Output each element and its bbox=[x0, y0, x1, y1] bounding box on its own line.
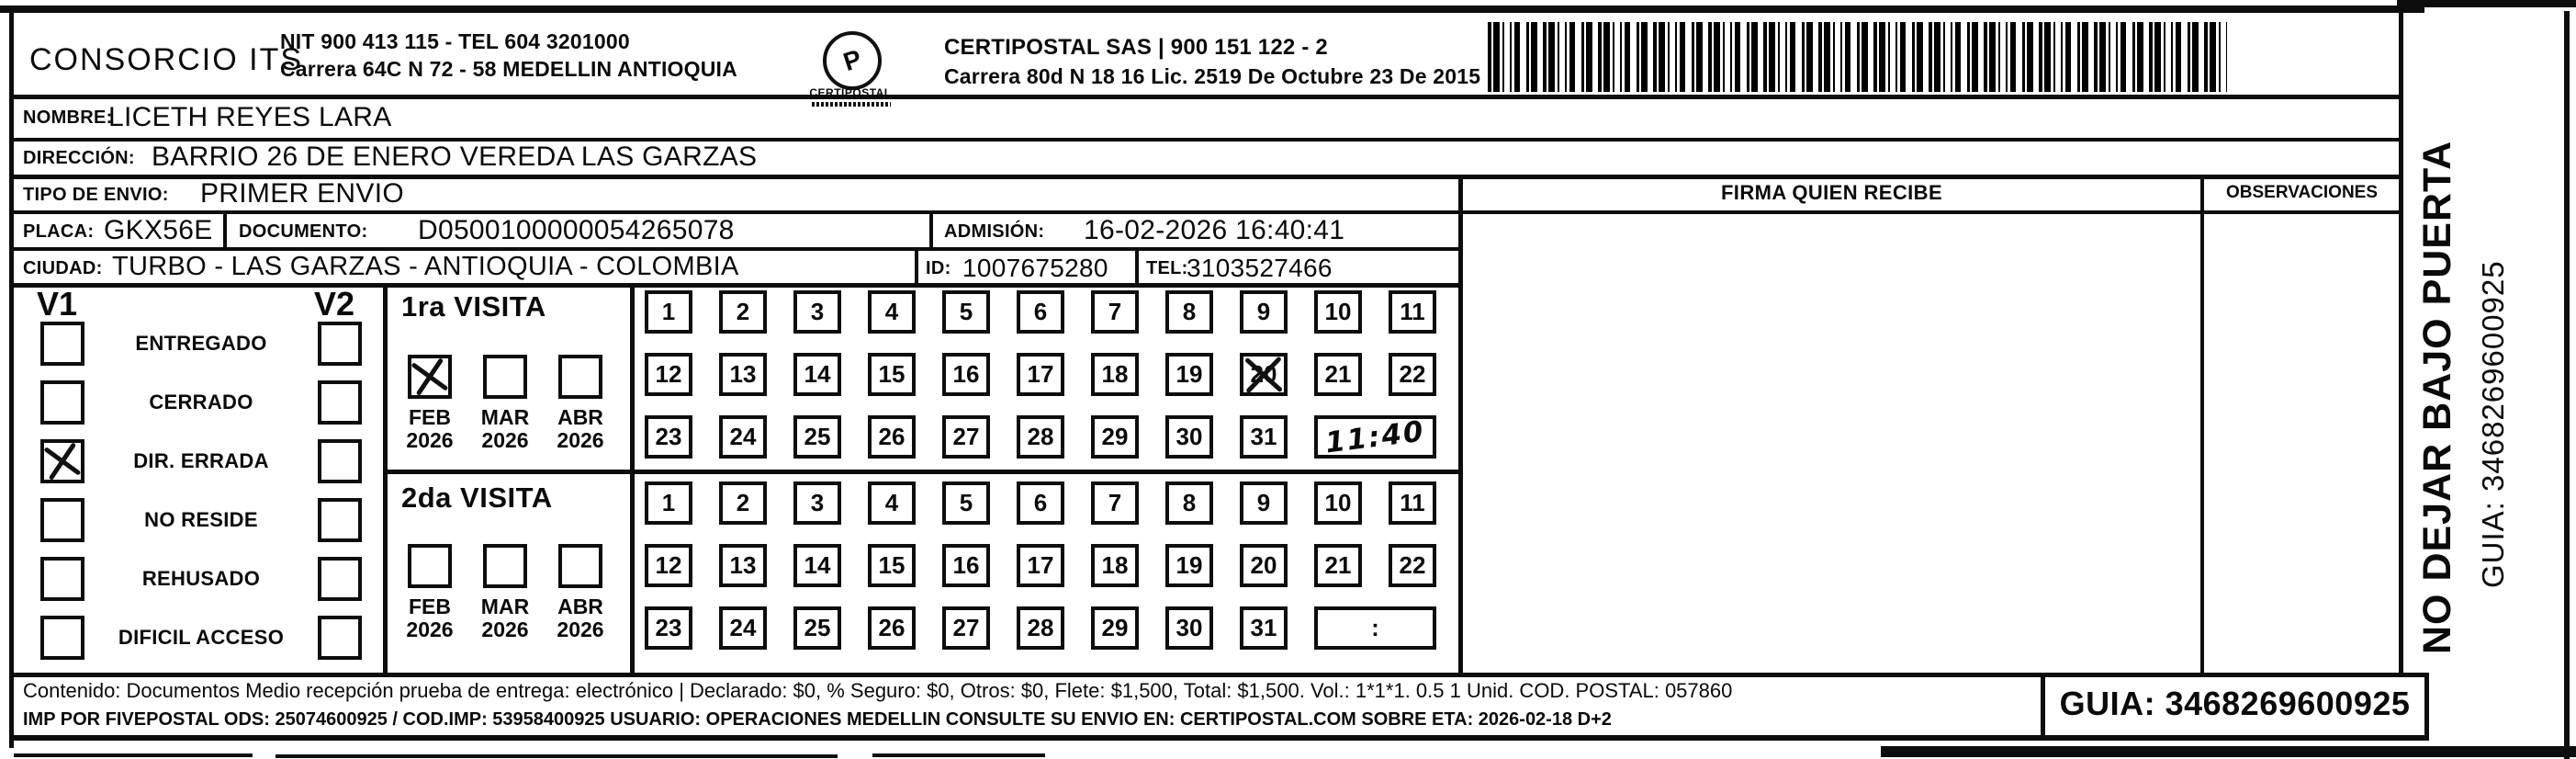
day-box-8: 8 bbox=[1165, 481, 1213, 525]
month-checkbox-abr bbox=[558, 355, 602, 399]
scan-artifact-line bbox=[14, 753, 253, 757]
footer-bottom-line bbox=[9, 735, 2429, 741]
direccion-label: DIRECCIÓN: bbox=[23, 148, 135, 169]
v1-checkbox-rehusado bbox=[40, 557, 84, 601]
month-option-abr: ABR2026 bbox=[548, 544, 613, 641]
company-nit-line: NIT 900 413 115 - TEL 604 3201000 bbox=[280, 29, 630, 54]
month-name: MAR bbox=[473, 595, 537, 618]
day-box-12: 12 bbox=[645, 353, 692, 396]
visit1-title: 1ra VISITA bbox=[401, 290, 546, 323]
day-box-28: 28 bbox=[1017, 415, 1064, 459]
company-name: CONSORCIO ITS bbox=[29, 42, 303, 78]
day-box-21: 21 bbox=[1314, 544, 1362, 587]
ciudad-value: TURBO - LAS GARZAS - ANTIOQUIA - COLOMBI… bbox=[112, 252, 739, 282]
month-option-mar: MAR2026 bbox=[473, 544, 537, 641]
month-checkbox-feb bbox=[408, 544, 452, 588]
day-box-4: 4 bbox=[868, 481, 916, 525]
month-year: 2026 bbox=[548, 618, 613, 641]
month-label: ABR2026 bbox=[548, 406, 613, 452]
day-box-21: 21 bbox=[1314, 353, 1362, 396]
status-label: REHUSADO bbox=[84, 567, 318, 591]
firma-column-left-line bbox=[1458, 175, 1463, 677]
admision-value: 16-02-2026 16:40:41 bbox=[1084, 215, 1344, 246]
v1-checkbox-no-reside bbox=[40, 498, 84, 542]
day-box-10: 10 bbox=[1314, 290, 1362, 334]
nombre-label: NOMBRE: bbox=[23, 108, 113, 129]
certipostal-line2: Carrera 80d N 18 16 Lic. 2519 De Octubre… bbox=[944, 64, 1480, 89]
day-box-6: 6 bbox=[1017, 290, 1064, 334]
month-name: ABR bbox=[548, 595, 613, 618]
visit1-day-grid: 1234567891011121314151617181920212223242… bbox=[645, 290, 1436, 459]
visit1-months: FEB2026MAR2026ABR2026 bbox=[398, 355, 613, 452]
panel-divider bbox=[630, 283, 635, 677]
top-border bbox=[0, 6, 2424, 13]
day-box-25: 25 bbox=[793, 415, 841, 459]
tipo-envio-label: TIPO DE ENVIO: bbox=[23, 185, 169, 206]
day-box-12: 12 bbox=[645, 544, 692, 587]
day-box-11: 11 bbox=[1389, 481, 1436, 525]
panel-divider bbox=[383, 283, 388, 677]
month-option-mar: MAR2026 bbox=[473, 355, 537, 452]
row-line bbox=[9, 95, 2403, 99]
day-box-23: 23 bbox=[645, 415, 692, 459]
scan-artifact-line bbox=[276, 754, 838, 758]
observaciones-column-header: OBSERVACIONES bbox=[2204, 183, 2400, 203]
day-box-23: 23 bbox=[645, 606, 692, 650]
day-box-27: 27 bbox=[942, 415, 990, 459]
day-box-16: 16 bbox=[942, 544, 990, 587]
status-rows: ENTREGADOCERRADODIR. ERRADANO RESIDEREHU… bbox=[40, 322, 362, 674]
id-label: ID: bbox=[926, 258, 951, 279]
month-checkbox-feb bbox=[408, 355, 452, 399]
day-box-6: 6 bbox=[1017, 481, 1064, 525]
day-box-9: 9 bbox=[1240, 481, 1288, 525]
v2-checkbox-entregado bbox=[318, 322, 362, 366]
placa-label: PLACA: bbox=[23, 221, 94, 243]
tel-value: 3103527466 bbox=[1187, 254, 1333, 283]
day-box-26: 26 bbox=[868, 415, 916, 459]
day-box-15: 15 bbox=[868, 544, 916, 587]
guia-box: GUIA: 3468269600925 bbox=[2045, 673, 2424, 735]
status-label: NO RESIDE bbox=[84, 508, 318, 532]
v2-checkbox-dir-errada bbox=[318, 439, 362, 483]
nombre-value: LICETH REYES LARA bbox=[108, 102, 392, 133]
day-box-7: 7 bbox=[1091, 481, 1139, 525]
time-placeholder: : bbox=[1371, 614, 1379, 642]
month-label: MAR2026 bbox=[473, 406, 537, 452]
day-box-17: 17 bbox=[1017, 353, 1064, 396]
barcode bbox=[1488, 22, 2227, 92]
day-box-19: 19 bbox=[1165, 353, 1213, 396]
cell-divider bbox=[929, 210, 933, 251]
day-box-2: 2 bbox=[719, 481, 767, 525]
scan-artifact-line bbox=[1881, 746, 2576, 757]
v2-checkbox-cerrado bbox=[318, 380, 362, 425]
day-box-26: 26 bbox=[868, 606, 916, 650]
month-name: FEB bbox=[398, 406, 462, 429]
row-line bbox=[9, 210, 2403, 214]
day-box-20: 20 bbox=[1240, 544, 1288, 587]
day-box-24: 24 bbox=[719, 415, 767, 459]
visit2-months: FEB2026MAR2026ABR2026 bbox=[398, 544, 613, 641]
status-row-rehusado: REHUSADO bbox=[40, 557, 362, 601]
direccion-value: BARRIO 26 DE ENERO VEREDA LAS GARZAS bbox=[152, 142, 757, 173]
month-label: MAR2026 bbox=[473, 595, 537, 641]
tipo-envio-value: PRIMER ENVIO bbox=[200, 178, 404, 210]
status-row-dir-errada: DIR. ERRADA bbox=[40, 439, 362, 483]
month-year: 2026 bbox=[548, 429, 613, 452]
day-box-13: 13 bbox=[719, 544, 767, 587]
day-box-31: 31 bbox=[1240, 415, 1288, 459]
day-box-10: 10 bbox=[1314, 481, 1362, 525]
v2-checkbox-no-reside bbox=[318, 498, 362, 542]
day-box-3: 3 bbox=[793, 290, 841, 334]
shipping-label-scan: CONSORCIO ITS NIT 900 413 115 - TEL 604 … bbox=[0, 0, 2576, 759]
day-box-14: 14 bbox=[793, 544, 841, 587]
day-box-29: 29 bbox=[1091, 415, 1139, 459]
guia-box-value: GUIA: 3468269600925 bbox=[2060, 685, 2411, 723]
status-label: DIFICIL ACCESO bbox=[84, 626, 318, 650]
scan-right-edge bbox=[2564, 11, 2570, 759]
logo-tagline-bar bbox=[812, 102, 891, 107]
visit2-title: 2da VISITA bbox=[401, 481, 553, 515]
id-value: 1007675280 bbox=[962, 254, 1108, 283]
time-box: : bbox=[1314, 606, 1436, 650]
day-box-16: 16 bbox=[942, 353, 990, 396]
day-box-5: 5 bbox=[942, 290, 990, 334]
day-box-1: 1 bbox=[645, 290, 692, 334]
month-name: ABR bbox=[548, 406, 613, 429]
v1-checkbox-entregado bbox=[40, 322, 84, 366]
admision-label: ADMISIÓN: bbox=[944, 221, 1044, 243]
side-warning-text: NO DEJAR BAJO PUERTA bbox=[2415, 121, 2467, 654]
document-right-border bbox=[2399, 7, 2403, 674]
month-year: 2026 bbox=[398, 429, 462, 452]
row-line bbox=[9, 247, 1462, 251]
cell-divider bbox=[915, 247, 918, 287]
v1-checkbox-dir-errada bbox=[40, 439, 84, 483]
month-option-feb: FEB2026 bbox=[398, 355, 462, 452]
scan-artifact-line bbox=[872, 753, 1045, 757]
day-box-22: 22 bbox=[1389, 544, 1436, 587]
day-box-15: 15 bbox=[868, 353, 916, 396]
side-guia-text: GUIA: 3468269600925 bbox=[2476, 179, 2513, 588]
status-label: CERRADO bbox=[84, 391, 318, 414]
v2-checkbox-rehusado bbox=[318, 557, 362, 601]
month-year: 2026 bbox=[473, 618, 537, 641]
month-name: MAR bbox=[473, 406, 537, 429]
handwritten-time: 11:40 bbox=[1323, 414, 1426, 459]
status-row-cerrado: CERRADO bbox=[40, 380, 362, 425]
day-box-31: 31 bbox=[1240, 606, 1288, 650]
month-label: FEB2026 bbox=[398, 406, 462, 452]
month-label: ABR2026 bbox=[548, 595, 613, 641]
time-box: 11:40 bbox=[1314, 415, 1436, 459]
day-box-20: 20 bbox=[1240, 353, 1288, 396]
company-address-line: Carrera 64C N 72 - 58 MEDELLIN ANTIOQUIA bbox=[280, 57, 737, 82]
day-box-4: 4 bbox=[868, 290, 916, 334]
guia-box-right-line bbox=[2424, 673, 2429, 741]
v1-checkbox-dificil-acceso bbox=[40, 616, 84, 660]
visit2-day-grid: 1234567891011121314151617181920212223242… bbox=[645, 481, 1436, 650]
status-row-no-reside: NO RESIDE bbox=[40, 498, 362, 542]
month-name: FEB bbox=[398, 595, 462, 618]
day-box-14: 14 bbox=[793, 353, 841, 396]
footer-content-line: Contenido: Documentos Medio recepción pr… bbox=[23, 679, 1732, 703]
tel-label: TEL: bbox=[1146, 258, 1188, 279]
month-option-abr: ABR2026 bbox=[548, 355, 613, 452]
day-box-13: 13 bbox=[719, 353, 767, 396]
observaciones-column-left-line bbox=[2200, 175, 2204, 677]
day-box-30: 30 bbox=[1165, 606, 1213, 650]
firma-column-header: FIRMA QUIEN RECIBE bbox=[1463, 181, 2200, 205]
month-checkbox-mar bbox=[483, 355, 527, 399]
day-box-22: 22 bbox=[1389, 353, 1436, 396]
documento-label: DOCUMENTO: bbox=[239, 221, 367, 243]
month-label: FEB2026 bbox=[398, 595, 462, 641]
status-row-entregado: ENTREGADO bbox=[40, 322, 362, 366]
month-option-feb: FEB2026 bbox=[398, 544, 462, 641]
day-box-17: 17 bbox=[1017, 544, 1064, 587]
placa-value: GKX56E bbox=[104, 215, 213, 246]
v1-header: V1 bbox=[37, 285, 77, 323]
day-box-9: 9 bbox=[1240, 290, 1288, 334]
status-label: DIR. ERRADA bbox=[84, 449, 318, 473]
day-box-3: 3 bbox=[793, 481, 841, 525]
day-box-18: 18 bbox=[1091, 544, 1139, 587]
day-box-25: 25 bbox=[793, 606, 841, 650]
month-year: 2026 bbox=[398, 618, 462, 641]
day-box-1: 1 bbox=[645, 481, 692, 525]
left-border bbox=[9, 6, 14, 748]
v1-checkbox-cerrado bbox=[40, 380, 84, 425]
day-box-30: 30 bbox=[1165, 415, 1213, 459]
day-box-28: 28 bbox=[1017, 606, 1064, 650]
cell-divider bbox=[223, 210, 227, 251]
ciudad-label: CIUDAD: bbox=[23, 258, 103, 279]
row-line bbox=[9, 283, 1462, 288]
day-box-2: 2 bbox=[719, 290, 767, 334]
status-row-dificil-acceso: DIFICIL ACCESO bbox=[40, 616, 362, 660]
day-box-8: 8 bbox=[1165, 290, 1213, 334]
v2-header: V2 bbox=[314, 285, 354, 323]
logo-glyph: P bbox=[839, 44, 865, 77]
cell-divider bbox=[1135, 247, 1139, 287]
month-checkbox-abr bbox=[558, 544, 602, 588]
footer-imp-line: IMP POR FIVEPOSTAL ODS: 25074600925 / CO… bbox=[23, 709, 1612, 731]
day-box-7: 7 bbox=[1091, 290, 1139, 334]
day-box-19: 19 bbox=[1165, 544, 1213, 587]
documento-value: D0500100000054265078 bbox=[418, 215, 735, 246]
day-box-11: 11 bbox=[1389, 290, 1436, 334]
day-box-27: 27 bbox=[942, 606, 990, 650]
visit-divider-line bbox=[383, 470, 1462, 474]
day-box-29: 29 bbox=[1091, 606, 1139, 650]
certipostal-logo-icon: P bbox=[823, 31, 882, 90]
top-border-right-step bbox=[2397, 0, 2576, 7]
month-year: 2026 bbox=[473, 429, 537, 452]
certipostal-line1: CERTIPOSTAL SAS | 900 151 122 - 2 bbox=[944, 35, 1328, 61]
status-label: ENTREGADO bbox=[84, 332, 318, 356]
v2-checkbox-dificil-acceso bbox=[318, 616, 362, 660]
day-box-5: 5 bbox=[942, 481, 990, 525]
day-box-18: 18 bbox=[1091, 353, 1139, 396]
day-box-24: 24 bbox=[719, 606, 767, 650]
month-checkbox-mar bbox=[483, 544, 527, 588]
